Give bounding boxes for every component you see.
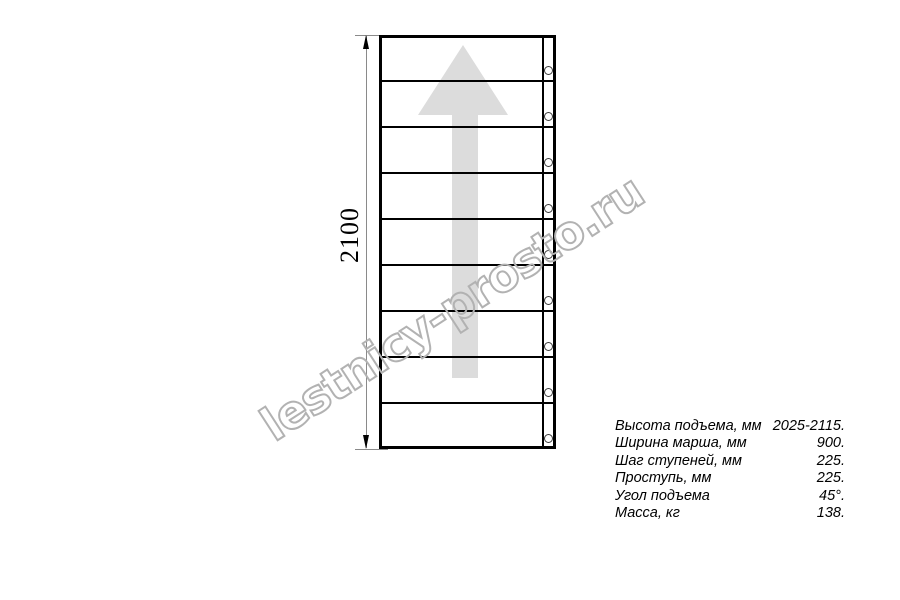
- stair-outline-right: [553, 35, 556, 449]
- dimension-line: [366, 36, 367, 448]
- staircase-plan: [379, 35, 556, 449]
- spec-row-height: Высота подъема, мм 2025-2115.: [615, 418, 845, 435]
- spec-label: Ширина марша, мм: [615, 435, 747, 452]
- dimension-arrowhead-up-icon: [363, 35, 369, 49]
- spec-label: Угол подъема: [615, 488, 710, 505]
- drawing-canvas: 2100 lestnicy-prosto.ru Высота подъема, …: [0, 0, 900, 600]
- screw-circle-icon: [544, 66, 553, 75]
- spec-value: 2025-2115.: [773, 418, 845, 435]
- stringer-line: [542, 35, 544, 449]
- spec-value: 45°.: [819, 488, 845, 505]
- spec-value: 225.: [817, 470, 845, 487]
- screw-circle-icon: [544, 434, 553, 443]
- stair-outline-bottom: [379, 446, 556, 449]
- spec-row-step: Шаг ступеней, мм 225.: [615, 453, 845, 470]
- dimension-label: 2100: [338, 195, 362, 275]
- spec-label: Высота подъема, мм: [615, 418, 762, 435]
- tread-line: [379, 218, 556, 220]
- screw-circle-icon: [544, 342, 553, 351]
- screw-circle-icon: [544, 158, 553, 167]
- screw-circle-icon: [544, 250, 553, 259]
- spec-table: Высота подъема, мм 2025-2115. Ширина мар…: [615, 418, 845, 522]
- spec-value: 138.: [817, 505, 845, 522]
- tread-line: [379, 126, 556, 128]
- tread-line: [379, 310, 556, 312]
- dimension-arrowhead-down-icon: [363, 435, 369, 449]
- spec-value: 900.: [817, 435, 845, 452]
- spec-row-tread: Проступь, мм 225.: [615, 470, 845, 487]
- spec-row-mass: Масса, кг 138.: [615, 505, 845, 522]
- screw-circle-icon: [544, 388, 553, 397]
- spec-row-angle: Угол подъема 45°.: [615, 488, 845, 505]
- spec-row-width: Ширина марша, мм 900.: [615, 435, 845, 452]
- spec-label: Проступь, мм: [615, 470, 711, 487]
- spec-label: Масса, кг: [615, 505, 680, 522]
- direction-arrow-shaft: [452, 113, 478, 378]
- tread-line: [379, 402, 556, 404]
- stair-outline-top: [379, 35, 556, 38]
- tread-line: [379, 264, 556, 266]
- tread-line: [379, 356, 556, 358]
- spec-value: 225.: [817, 453, 845, 470]
- stair-outline-left: [379, 35, 382, 449]
- screw-circle-icon: [544, 204, 553, 213]
- tread-line: [379, 172, 556, 174]
- spec-label: Шаг ступеней, мм: [615, 453, 742, 470]
- screw-circle-icon: [544, 296, 553, 305]
- tread-line: [379, 80, 556, 82]
- screw-circle-icon: [544, 112, 553, 121]
